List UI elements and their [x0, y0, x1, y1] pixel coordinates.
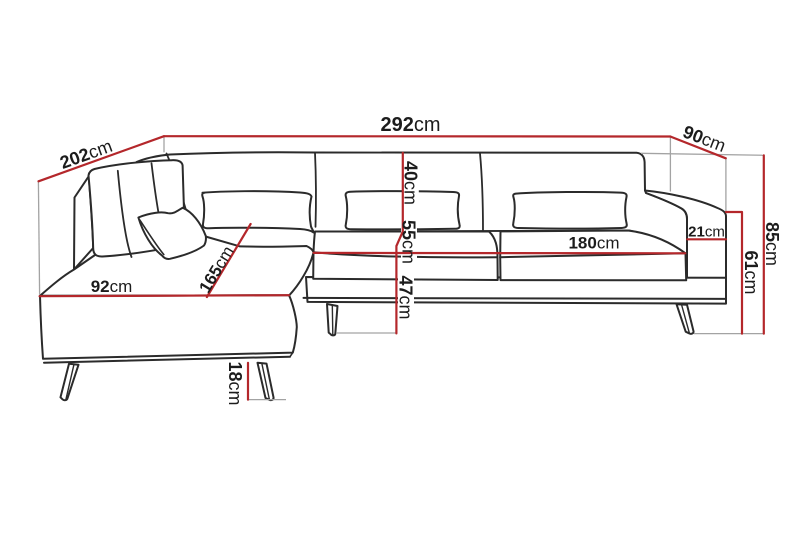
- svg-text:180cm: 180cm: [568, 233, 619, 252]
- svg-text:18cm: 18cm: [225, 361, 245, 405]
- svg-text:292cm: 292cm: [380, 114, 440, 136]
- svg-text:47cm: 47cm: [396, 275, 416, 319]
- svg-text:92cm: 92cm: [91, 277, 133, 296]
- svg-text:55cm: 55cm: [399, 220, 419, 264]
- svg-text:61cm: 61cm: [741, 250, 761, 294]
- svg-text:21cm: 21cm: [688, 223, 725, 240]
- svg-text:85cm: 85cm: [762, 222, 782, 266]
- svg-text:40cm: 40cm: [401, 161, 421, 205]
